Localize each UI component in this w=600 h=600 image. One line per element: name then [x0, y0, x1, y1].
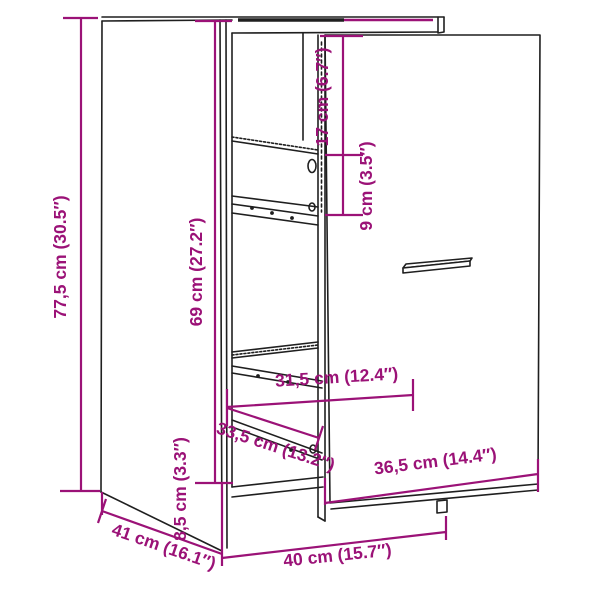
dim-height-interior-label: 69 cm (27.2″) — [186, 218, 206, 327]
door-handle — [403, 258, 472, 273]
door-foot — [437, 500, 447, 513]
dim-shelf-gap-label: 9 cm (3.5″) — [356, 141, 376, 230]
dim-front-panel-width-label: 36,5 cm (14.4″) — [373, 444, 498, 479]
left-side-panel — [101, 20, 232, 551]
shelf-top — [232, 137, 318, 173]
dim-width-total-label: 40 cm (15.7″) — [282, 539, 392, 570]
dim-inner-width-label: 31,5 cm (12.4″) — [275, 363, 399, 390]
shelf-upper — [232, 196, 318, 225]
door-panel — [325, 35, 540, 513]
dim-plinth-height-label: 8,5 cm (3.3″) — [170, 437, 190, 541]
dimension-lines — [60, 18, 538, 566]
dim-height-total-label: 77,5 cm (30.5″) — [50, 195, 70, 318]
dim-top-section-label: 17 cm (6.7″) — [312, 48, 332, 147]
shelf-middle — [232, 342, 318, 358]
diagram-canvas: 77,5 cm (30.5″) 69 cm (27.2″) 17 cm (6.7… — [0, 0, 600, 600]
dim-top-section-line — [320, 20, 433, 215]
cabinet-diagram: 77,5 cm (30.5″) 69 cm (27.2″) 17 cm (6.7… — [0, 0, 600, 600]
base-plinth — [232, 477, 323, 497]
